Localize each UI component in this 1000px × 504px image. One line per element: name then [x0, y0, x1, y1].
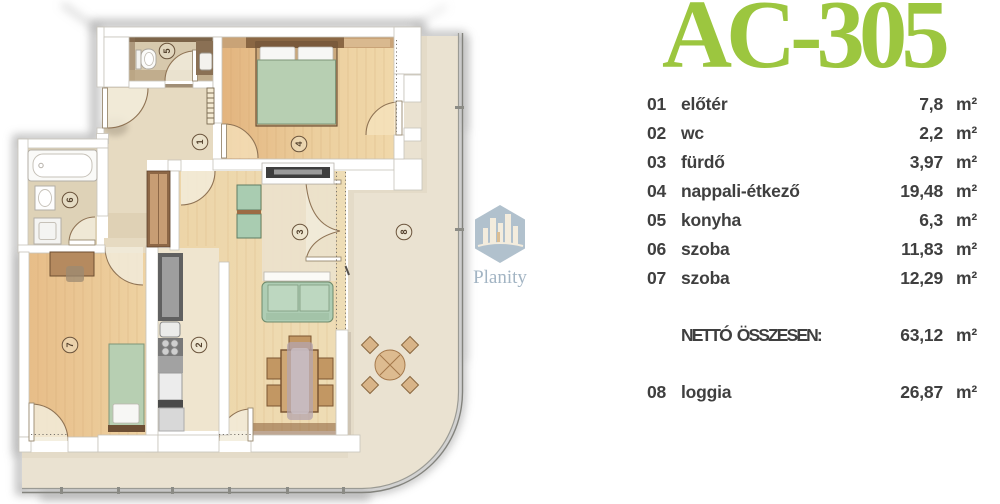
svg-text:5: 5	[162, 48, 172, 53]
